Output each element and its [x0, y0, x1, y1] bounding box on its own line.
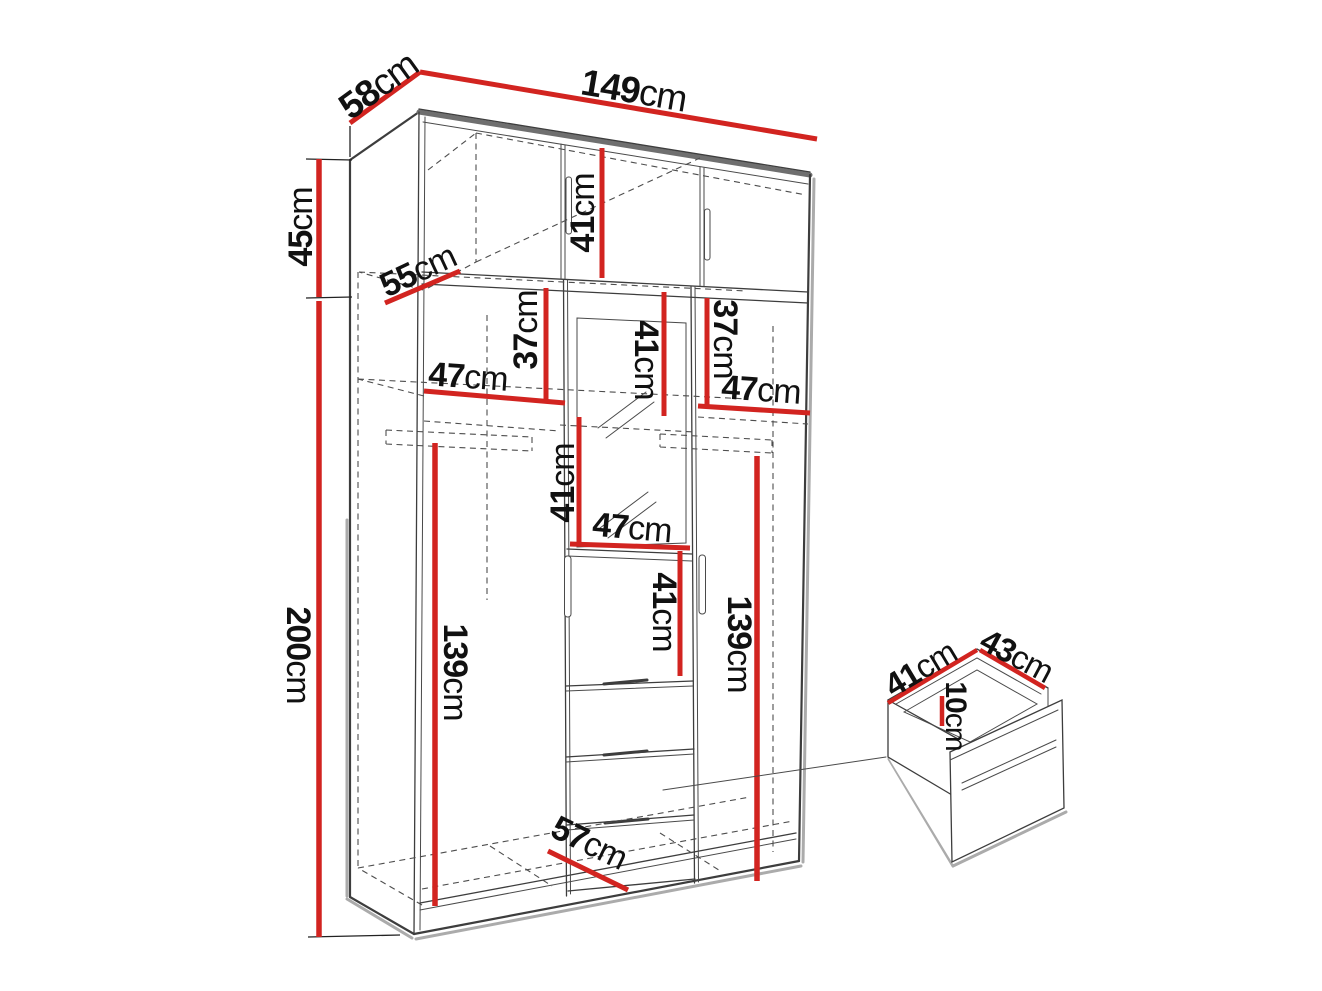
top-front-edge-highlight — [419, 109, 810, 172]
dim-label-10-drawer-height: 10cm — [940, 681, 973, 750]
upper-interior-depth-left — [428, 133, 476, 170]
upper-cabinet — [422, 122, 808, 303]
mirror-hatch-2 — [606, 402, 654, 438]
drawer2-handle — [604, 751, 647, 755]
floor-depth-left — [358, 868, 422, 905]
shelf2-back-edge — [358, 379, 748, 399]
left-front-edge-inner — [420, 117, 425, 930]
top-front-edge — [419, 112, 810, 175]
upper-shelf-top — [422, 272, 808, 292]
dim-label-58-depth: 58cm — [331, 43, 425, 127]
tick-middle — [306, 297, 352, 298]
upper-door-top-line — [423, 122, 808, 184]
dim-label-47-right: 47cm — [720, 368, 802, 411]
shelf2-front-right — [698, 417, 808, 424]
dim-label-41-center-upper: 41cm — [627, 320, 665, 399]
dim-label-139-right: 139cm — [720, 595, 758, 692]
hanging-rail-right — [660, 434, 772, 453]
left-front-edge — [414, 112, 419, 934]
dim-label-200-height: 200cm — [279, 606, 317, 703]
dim-label-41-center-mirror: 41cm — [544, 443, 582, 522]
upper-shelf-bottom — [422, 284, 808, 303]
tick-top — [306, 159, 352, 160]
dim-label-57-floor-depth: 57cm — [545, 809, 633, 878]
main-door-handle-right — [699, 555, 706, 614]
shadow-bottom — [416, 866, 801, 939]
dim-label-139-left: 139cm — [436, 623, 474, 720]
dim-label-37-right: 37cm — [706, 299, 744, 378]
dim-label-47-center: 47cm — [591, 506, 673, 551]
dim-label-149-width: 149cm — [578, 61, 689, 119]
main-door-handle-left — [565, 556, 572, 617]
shadow-bottom-left — [347, 899, 412, 938]
wardrobe-dimension-diagram: 149cm 58cm 45cm 200cm 55cm 41cm 37cm 37c… — [0, 0, 1322, 991]
center-frame-right-a — [691, 287, 695, 883]
drawer1-top-b — [566, 686, 693, 691]
tick-bottom — [308, 935, 400, 937]
shelf2-front-left — [424, 421, 560, 431]
dim-label-47-left: 47cm — [427, 355, 509, 398]
dim-label-37-left: 37cm — [507, 290, 545, 369]
center-shelf-b — [567, 556, 692, 561]
center-frame-right-b — [695, 287, 699, 882]
dim-label-41-upper-cabinet: 41cm — [564, 173, 602, 252]
dim-label-45-height: 45cm — [282, 187, 320, 266]
left-side-bottom-edge — [350, 897, 414, 934]
dim-label-41-center-lower: 41cm — [645, 572, 683, 651]
upper-door-handle-right — [705, 209, 711, 260]
hanging-rail-left — [386, 430, 532, 451]
drawer-pointer-line — [663, 757, 886, 790]
floor-depth-line-b — [660, 833, 722, 872]
